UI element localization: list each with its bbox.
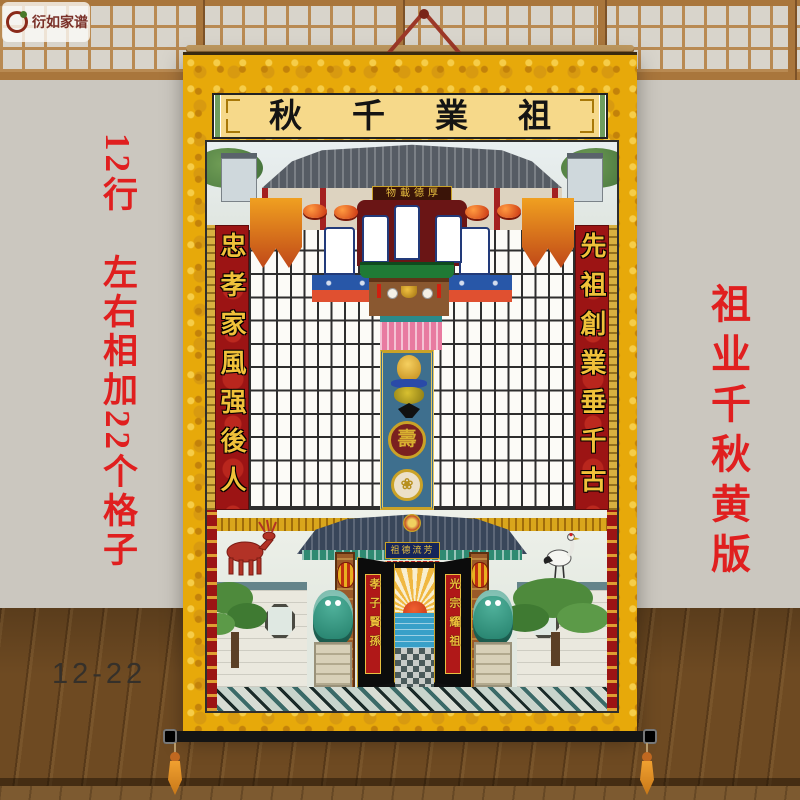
blank-name-tablet [362,215,389,263]
left-couplet-text: 忠孝家風强後人 [216,226,248,509]
ancestor-scroll: 秋千業祖 物載德厚 忠孝家風强後人 先祖創業垂千古 [183,52,637,733]
stone-lion-right [473,590,513,645]
offering-icon [422,288,433,299]
golden-flame-icon [397,355,421,381]
scroll-artwork: 物載德厚 忠孝家風强後人 先祖創業垂千古 [205,140,619,713]
offering-icon [387,288,398,299]
lion-pedestal [474,642,512,687]
pine-tree-right [495,570,615,670]
side-pavilion [567,158,603,202]
lion-pedestal [314,642,352,687]
black-ribbon [398,403,420,418]
brand-watermark: 衍如家谱 [2,2,90,42]
golden-pot-icon [394,387,424,404]
gate-lantern-icon [471,562,489,588]
right-couplet-band: 先祖創業垂千古 [575,225,609,510]
red-lantern-icon [334,205,358,219]
side-pavilion [221,158,257,202]
door-couplet-right: 光宗耀祖 [445,574,461,674]
candle-icon [377,284,381,298]
red-lantern-icon [465,205,489,219]
door-couplet-left: 孝子賢孫 [365,574,381,674]
right-couplet-text: 先祖創業垂千古 [576,226,608,509]
right-marketing-note: 祖业千秋黄版 [698,283,756,603]
floor-front-strip [0,786,800,800]
gate-plaque: 祖德流芳 [385,542,440,559]
hall-plaque: 物載德厚 [372,186,452,201]
tassel-head [170,752,180,762]
blank-name-tablet [459,227,490,275]
altar-cloth [360,262,454,278]
blank-name-tablet [435,215,462,263]
left-couplet-band: 忠孝家風强後人 [215,225,249,510]
gold-filigree-strip [609,225,617,510]
doorway-floor [395,648,434,687]
pink-fringe [380,316,442,350]
rod-end-cap [163,729,177,744]
scene-red-edge [207,510,217,711]
watermark-brand-text: 衍如家谱 [32,12,88,32]
checkered-plaza [207,687,617,711]
title-banner: 秋千業祖 [212,93,608,139]
stone-lion-left [313,590,353,645]
scroll-bottom-rod [163,731,657,742]
deer-figure [215,518,277,578]
lattice-post [788,0,797,80]
flower-medallion: ❀ [391,469,423,501]
blank-name-tablet [324,227,355,275]
red-lantern-icon [497,204,521,218]
tassel-head [642,752,652,762]
rod-end-cap [643,729,657,744]
product-photo: 秋千業祖 物載德厚 忠孝家風强後人 先祖創業垂千古 [0,0,800,800]
scallop-decor [445,275,512,302]
central-pillar-banner: 壽 ❀ [380,350,434,510]
roof-medallion-icon [403,514,421,532]
door-couplet-left-text: 孝子賢孫 [366,578,382,654]
blank-name-tablet-center [394,205,420,260]
size-code-note: 12-22 [52,658,146,691]
scroll-title: 秋千業祖 [214,98,606,136]
candle-icon [437,284,441,298]
watermark-logo-icon [6,11,28,33]
sea-waves [395,613,434,648]
red-lantern-icon [303,204,327,218]
rising-sun-scene [395,568,434,648]
longevity-medallion: 壽 [388,421,426,459]
scene-red-edge [607,510,617,711]
floor-edge-shadow [0,778,800,786]
left-marketing-note: 12行 左右相加22个格子 [92,133,143,593]
incense-urn-icon [401,286,417,298]
door-couplet-right-text: 光宗耀祖 [446,578,462,654]
gate-lantern-icon [337,562,355,588]
